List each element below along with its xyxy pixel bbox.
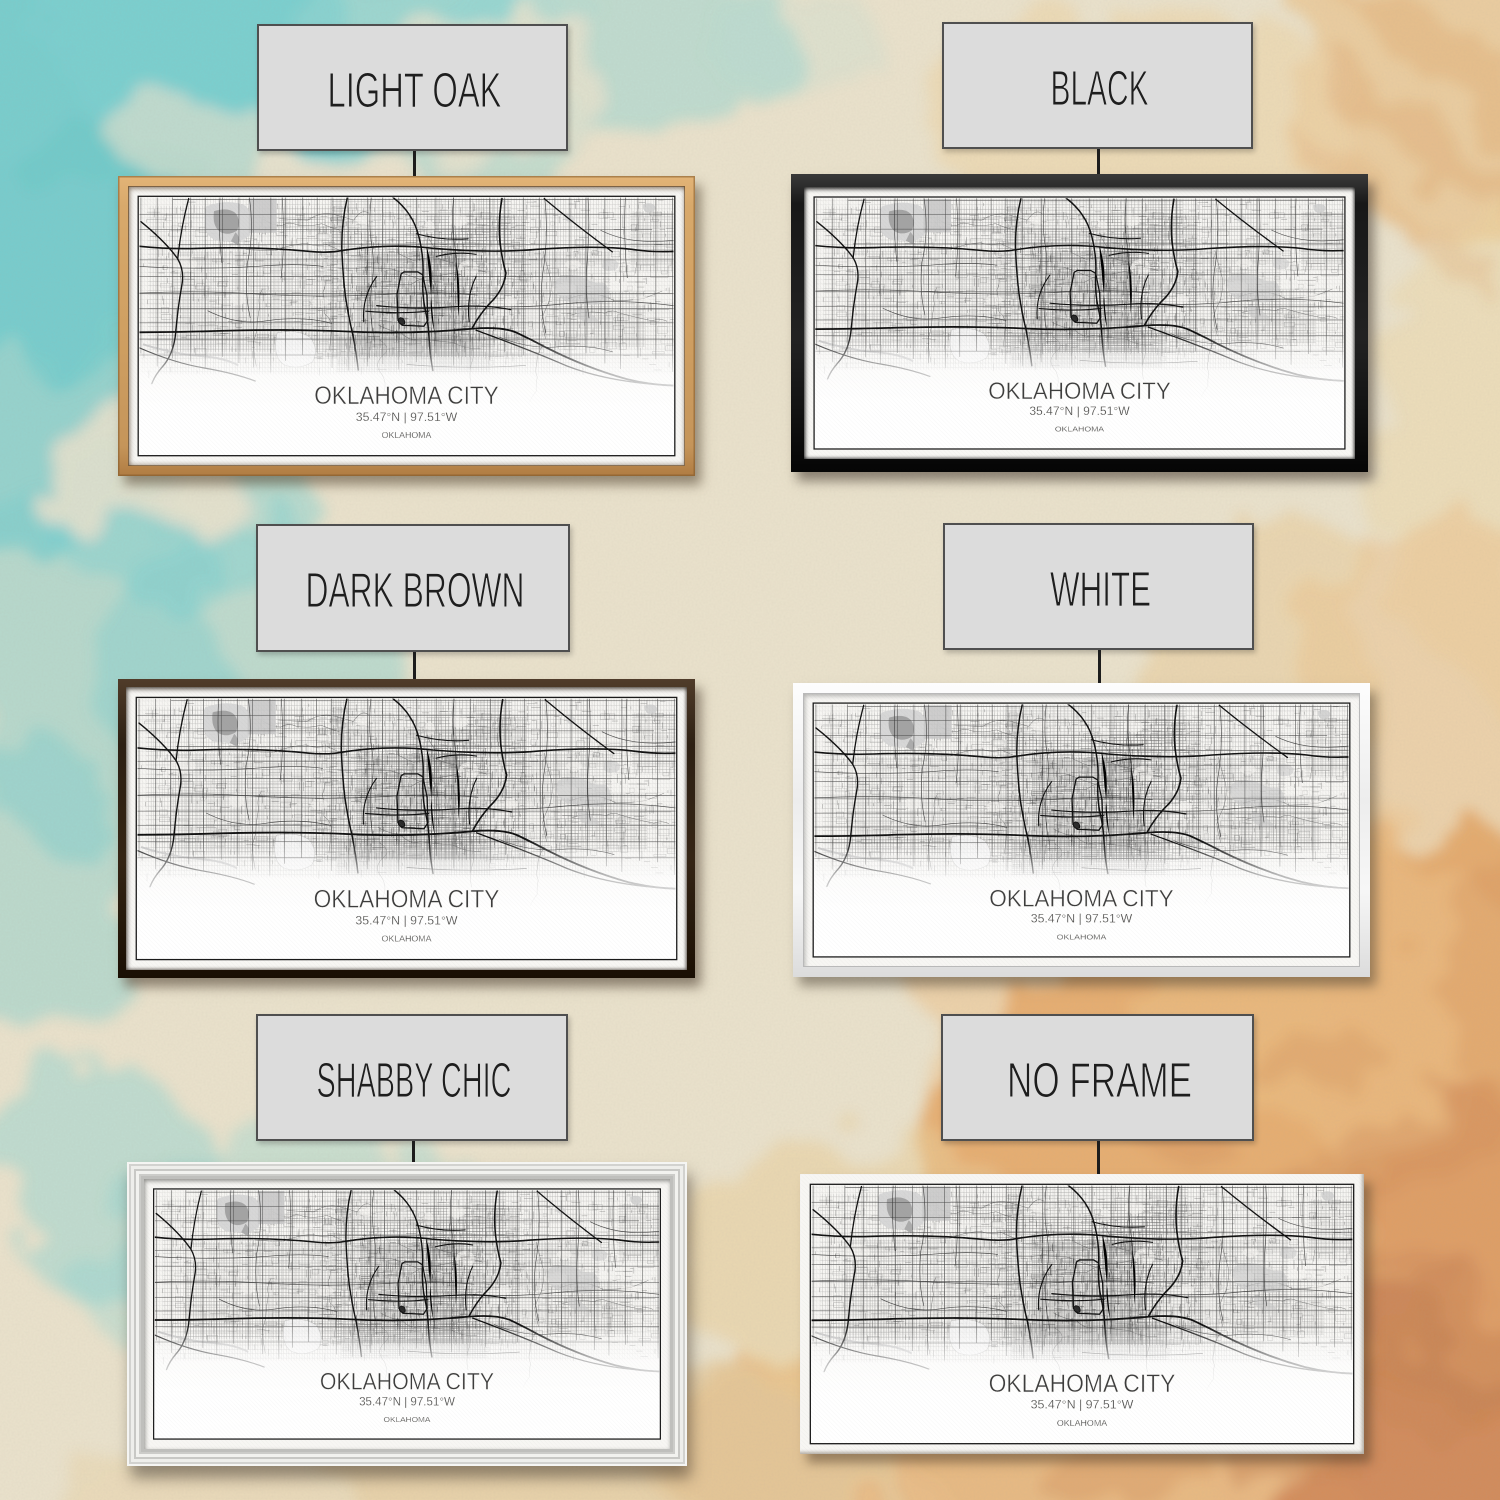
svg-text:BLACK: BLACK: [1051, 62, 1149, 117]
svg-text:SHABBY CHIC: SHABBY CHIC: [317, 1054, 512, 1109]
svg-text:LIGHT OAK: LIGHT OAK: [328, 64, 502, 119]
svg-text:NO FRAME: NO FRAME: [1007, 1054, 1192, 1109]
svg-text:DARK BROWN: DARK BROWN: [306, 564, 525, 619]
svg-text:WHITE: WHITE: [1050, 563, 1151, 618]
